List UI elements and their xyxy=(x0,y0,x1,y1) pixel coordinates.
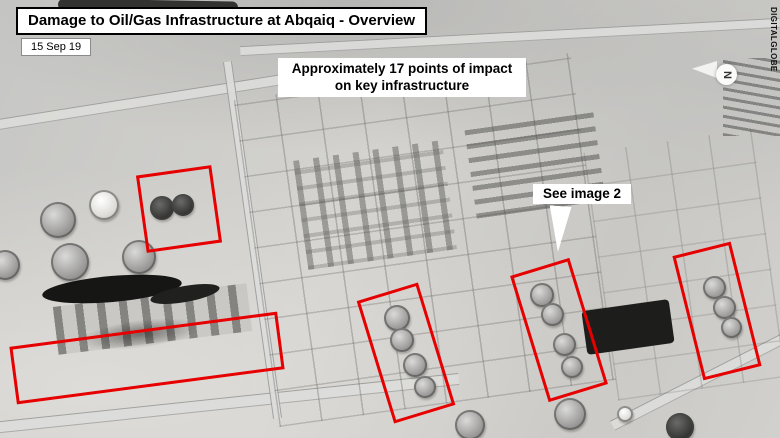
credit-watermark: DIGITALGLOBE xyxy=(769,7,778,72)
see-image-2-callout: See image 2 xyxy=(533,184,631,204)
storage-tank xyxy=(666,413,694,438)
storage-tank xyxy=(51,243,89,281)
storage-tank xyxy=(455,410,485,438)
damage-marker-1 xyxy=(136,165,222,253)
storage-tank xyxy=(617,406,633,422)
title-box: Damage to Oil/Gas Infrastructure at Abqa… xyxy=(16,7,427,35)
impact-note: Approximately 17 points of impact on key… xyxy=(278,58,526,97)
date-label: 15 Sep 19 xyxy=(21,38,91,56)
satellite-image: N Damage to Oil/Gas Infrastructure at Ab… xyxy=(0,0,780,438)
storage-tank xyxy=(89,190,119,220)
impact-note-line2: on key infrastructure xyxy=(278,77,526,94)
impact-note-line1: Approximately 17 points of impact xyxy=(278,60,526,77)
north-label: N xyxy=(720,71,732,79)
north-arrow-icon: N xyxy=(716,64,737,85)
plant-cluster xyxy=(293,140,457,270)
storage-tank xyxy=(40,202,76,238)
storage-tank xyxy=(554,398,586,430)
page-title: Damage to Oil/Gas Infrastructure at Abqa… xyxy=(28,12,415,29)
